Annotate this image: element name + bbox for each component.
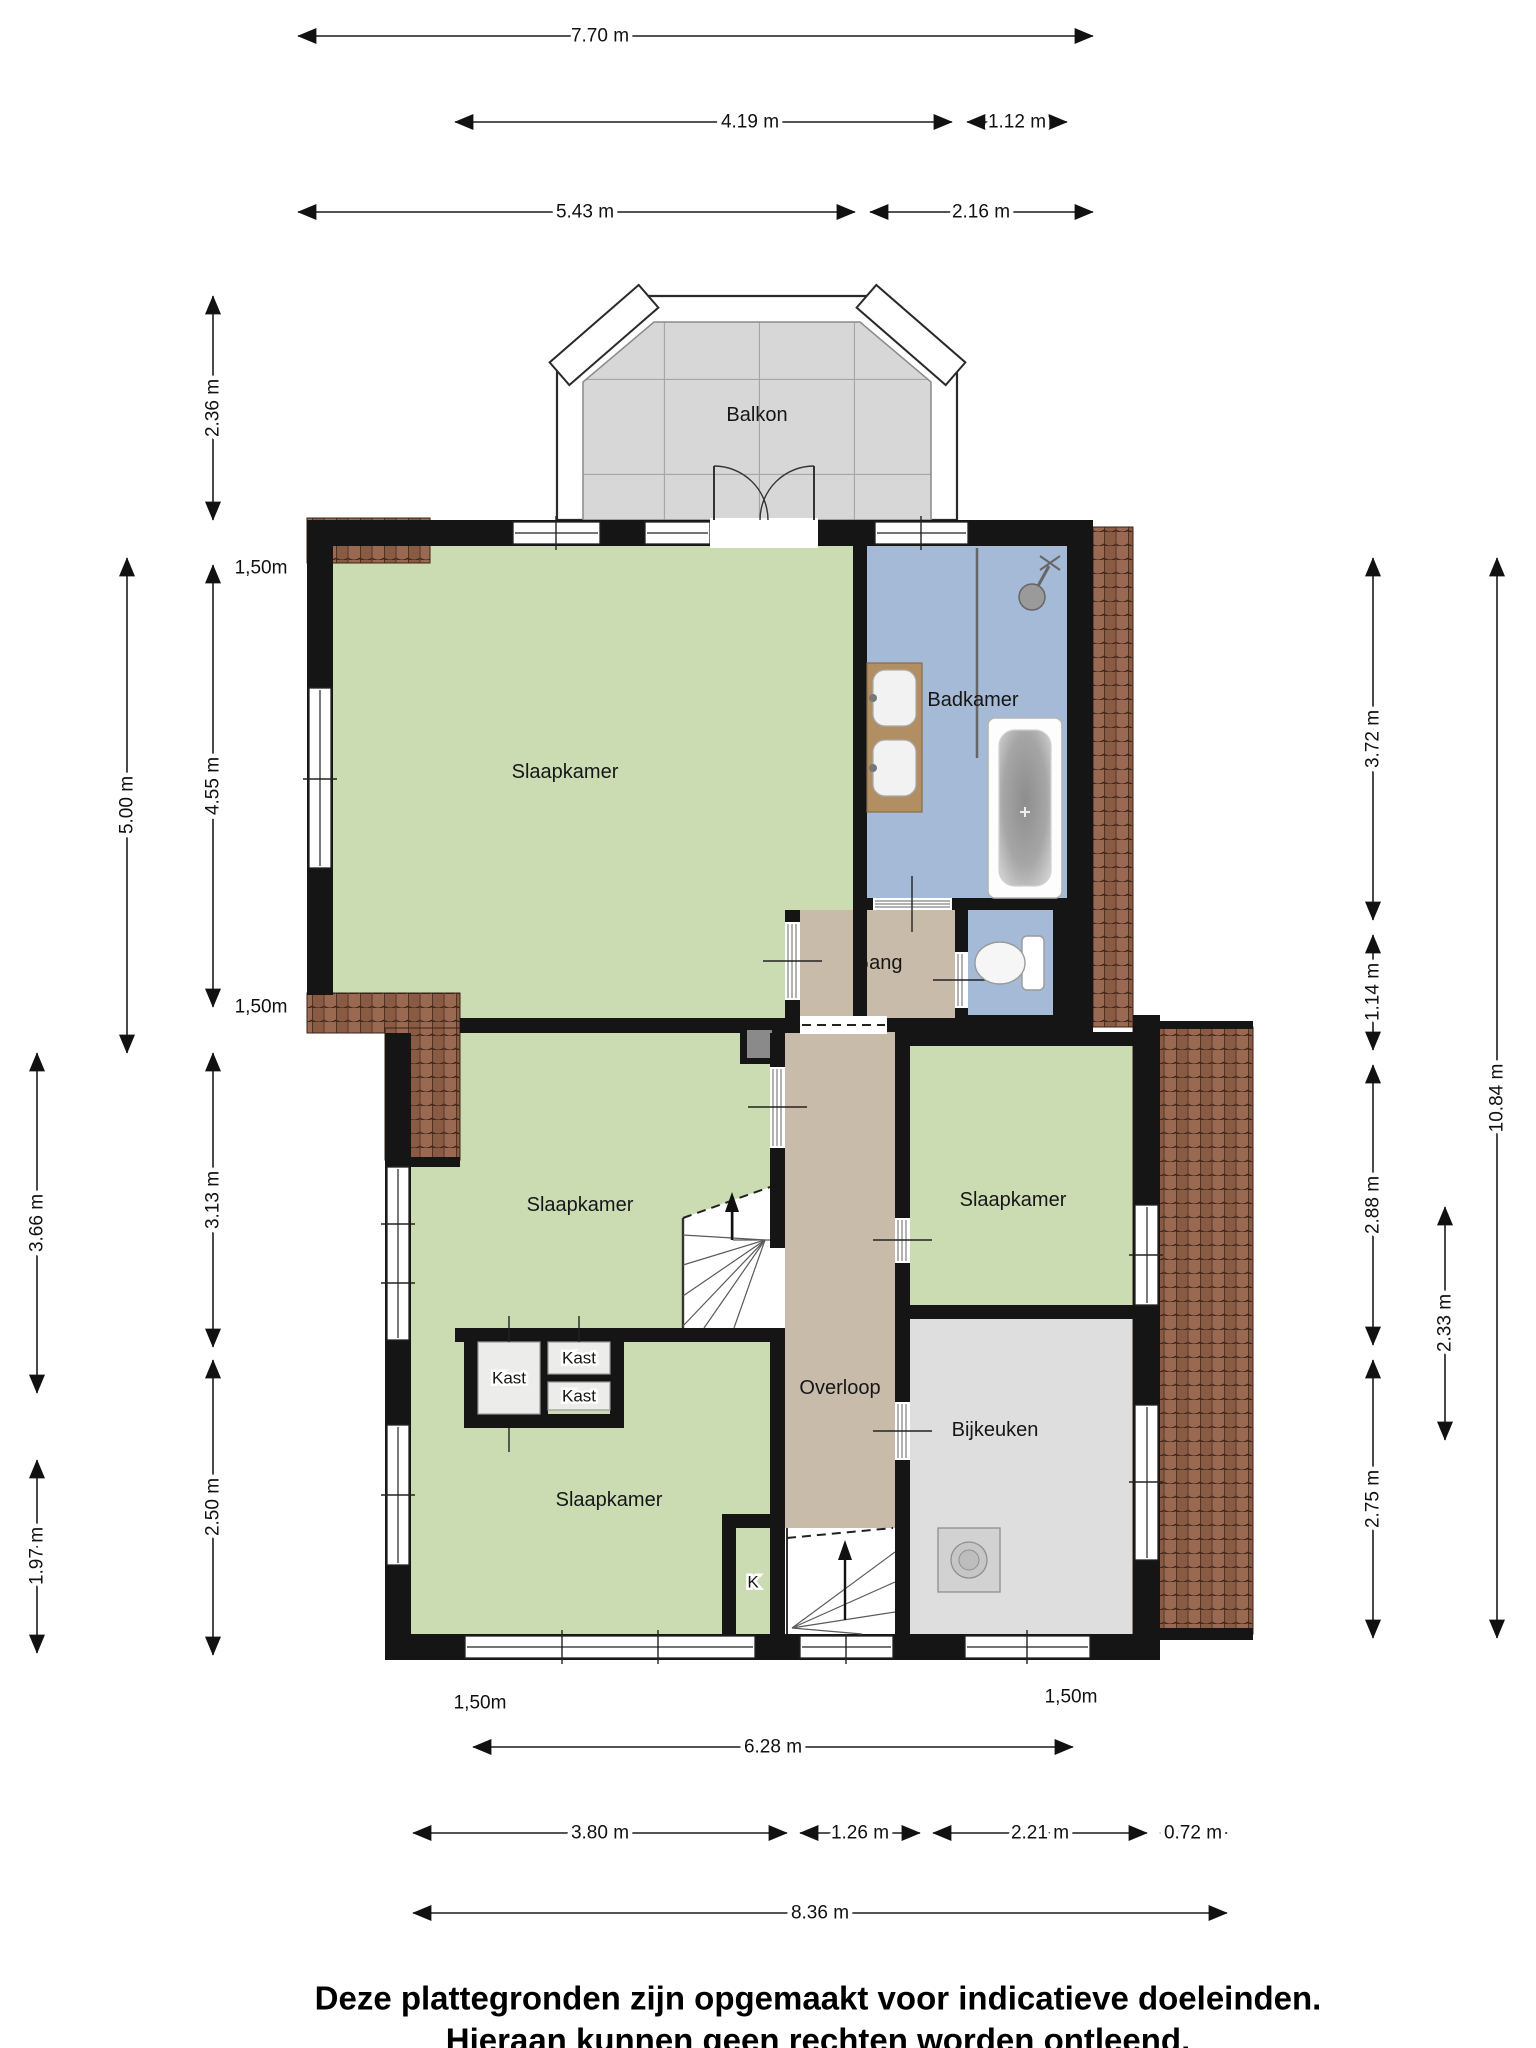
- room-label-k: K: [747, 1573, 759, 1592]
- dim-label: 2.33 m: [1435, 1294, 1456, 1352]
- room-label-gang: Gang: [854, 952, 903, 974]
- dim-7-70: 7.70 m: [298, 26, 1093, 47]
- height-line-150-midleft: 1,50m: [235, 997, 288, 1018]
- room-label-slaapkamer-1: Slaapkamer: [512, 761, 619, 783]
- sink: [873, 740, 916, 796]
- room-label-kast-1: Kast: [492, 1369, 526, 1388]
- room-label-slaapkamer-2: Slaapkamer: [527, 1194, 634, 1216]
- room-label-bijkeuken: Bijkeuken: [952, 1419, 1039, 1441]
- dim-label: 8.36 m: [791, 1903, 849, 1924]
- dim-2-21: 2.21 m: [933, 1823, 1147, 1844]
- dim-10-84: 10.84 m: [1487, 558, 1508, 1638]
- dim-label: 4.55 m: [203, 757, 224, 815]
- k-closet: K: [747, 1573, 759, 1592]
- dim-2-50: 2.50 m: [203, 1360, 224, 1655]
- dim-label: 3.80 m: [571, 1823, 629, 1844]
- dim-4-19: 4.19 m: [455, 112, 952, 133]
- room-label-kast-2: Kast: [562, 1349, 596, 1368]
- roof-left-band: [307, 993, 460, 1033]
- room-label-slaapkamer-3: Slaapkamer: [960, 1189, 1067, 1211]
- dim-label: 2.88 m: [1363, 1176, 1384, 1234]
- dim-2-16: 2.16 m: [870, 202, 1093, 223]
- dim-2-33: 2.33 m: [1435, 1207, 1456, 1440]
- dim-label: 10.84 m: [1487, 1064, 1508, 1133]
- dim-label: 2.21 m: [1011, 1823, 1069, 1844]
- dimensions-bottom: 1,50m 1,50m 6.28 m 3.80 m 1.26 m 2.21 m …: [413, 1687, 1227, 1924]
- chimney: [747, 1030, 772, 1058]
- bathtub: [988, 718, 1062, 898]
- dim-label: 0.72 m: [1164, 1823, 1222, 1844]
- room-label-badkamer: Badkamer: [927, 689, 1018, 711]
- dim-label: 1.12 m: [988, 112, 1046, 133]
- floor-slaapkamer-3: [910, 1046, 1133, 1305]
- dim-label: 1.97 m: [27, 1527, 48, 1585]
- dim-label: 4.19 m: [721, 112, 779, 133]
- dim-label: 2.36 m: [203, 379, 224, 437]
- dim-label: 3.72 m: [1363, 710, 1384, 768]
- dim-1-14: 1.14 m: [1363, 935, 1384, 1050]
- window: [645, 522, 710, 544]
- sink: [873, 670, 916, 726]
- dimensions-right: 3.72 m 1.14 m 2.88 m 2.75 m 10.84 m 2.33…: [1363, 558, 1508, 1638]
- dim-2-88: 2.88 m: [1363, 1065, 1384, 1345]
- dim-5-43: 5.43 m: [298, 202, 855, 223]
- dim-5-00: 5.00 m: [117, 558, 138, 1053]
- balcony: Balkon: [550, 285, 966, 520]
- dim-0-72: 0.72 m: [1160, 1823, 1227, 1844]
- dim-1-12: 1.12 m: [967, 112, 1067, 133]
- dim-label: 3.13 m: [203, 1171, 224, 1229]
- washing-machine: [938, 1528, 1000, 1592]
- dim-label: 5.43 m: [556, 202, 614, 223]
- dim-label: 3.66 m: [27, 1194, 48, 1252]
- dim-3-66: 3.66 m: [27, 1053, 48, 1393]
- height-line-150-bottomright: 1,50m: [1045, 1687, 1098, 1708]
- vanity-double-sink: [867, 663, 922, 812]
- dim-label: 1.14 m: [1363, 963, 1384, 1021]
- dim-label: 5.00 m: [117, 776, 138, 834]
- dim-label: 2.16 m: [952, 202, 1010, 223]
- roof-right-strip: [1093, 527, 1133, 1027]
- dimensions-left: 2.36 m 5.00 m 4.55 m 1,50m 1,50m 3.66 m …: [27, 296, 288, 1655]
- room-label-slaapkamer-4: Slaapkamer: [556, 1489, 663, 1511]
- dim-8-36: 8.36 m: [413, 1903, 1227, 1924]
- disclaimer-line-2: Hieraan kunnen geen rechten worden ontle…: [446, 2022, 1190, 2048]
- dim-6-28: 6.28 m: [473, 1737, 1073, 1758]
- room-label-balkon: Balkon: [726, 404, 787, 426]
- dim-label: 1.26 m: [831, 1823, 889, 1844]
- dim-label: 2.75 m: [1363, 1470, 1384, 1528]
- height-line-150-topleft: 1,50m: [235, 558, 288, 579]
- room-label-overloop: Overloop: [799, 1377, 880, 1399]
- dim-label: 2.50 m: [203, 1478, 224, 1536]
- dim-2-36: 2.36 m: [203, 296, 224, 520]
- disclaimer-line-1: Deze plattegronden zijn opgemaakt voor i…: [315, 1980, 1322, 2017]
- dim-label: 7.70 m: [571, 26, 629, 47]
- opening-gang-overloop: [800, 1016, 887, 1034]
- dim-4-55: 4.55 m: [203, 565, 224, 1007]
- dim-3-80: 3.80 m: [413, 1823, 787, 1844]
- dim-2-75: 2.75 m: [1363, 1360, 1384, 1638]
- height-line-150-bottomleft: 1,50m: [454, 1693, 507, 1714]
- room-label-kast-3: Kast: [562, 1387, 596, 1406]
- dim-1-97: 1.97 m: [27, 1460, 48, 1653]
- dim-label: 6.28 m: [744, 1737, 802, 1758]
- stairs-lower: [785, 1528, 895, 1634]
- floorplan-page: Balkon: [0, 0, 1536, 2048]
- floorplan-svg: Balkon: [0, 0, 1536, 2048]
- dim-3-72: 3.72 m: [1363, 558, 1384, 920]
- dim-3-13: 3.13 m: [203, 1053, 224, 1347]
- dimensions-top: 7.70 m 4.19 m 1.12 m 5.43 m 2.16 m: [298, 26, 1093, 223]
- dim-1-26: 1.26 m: [800, 1823, 920, 1844]
